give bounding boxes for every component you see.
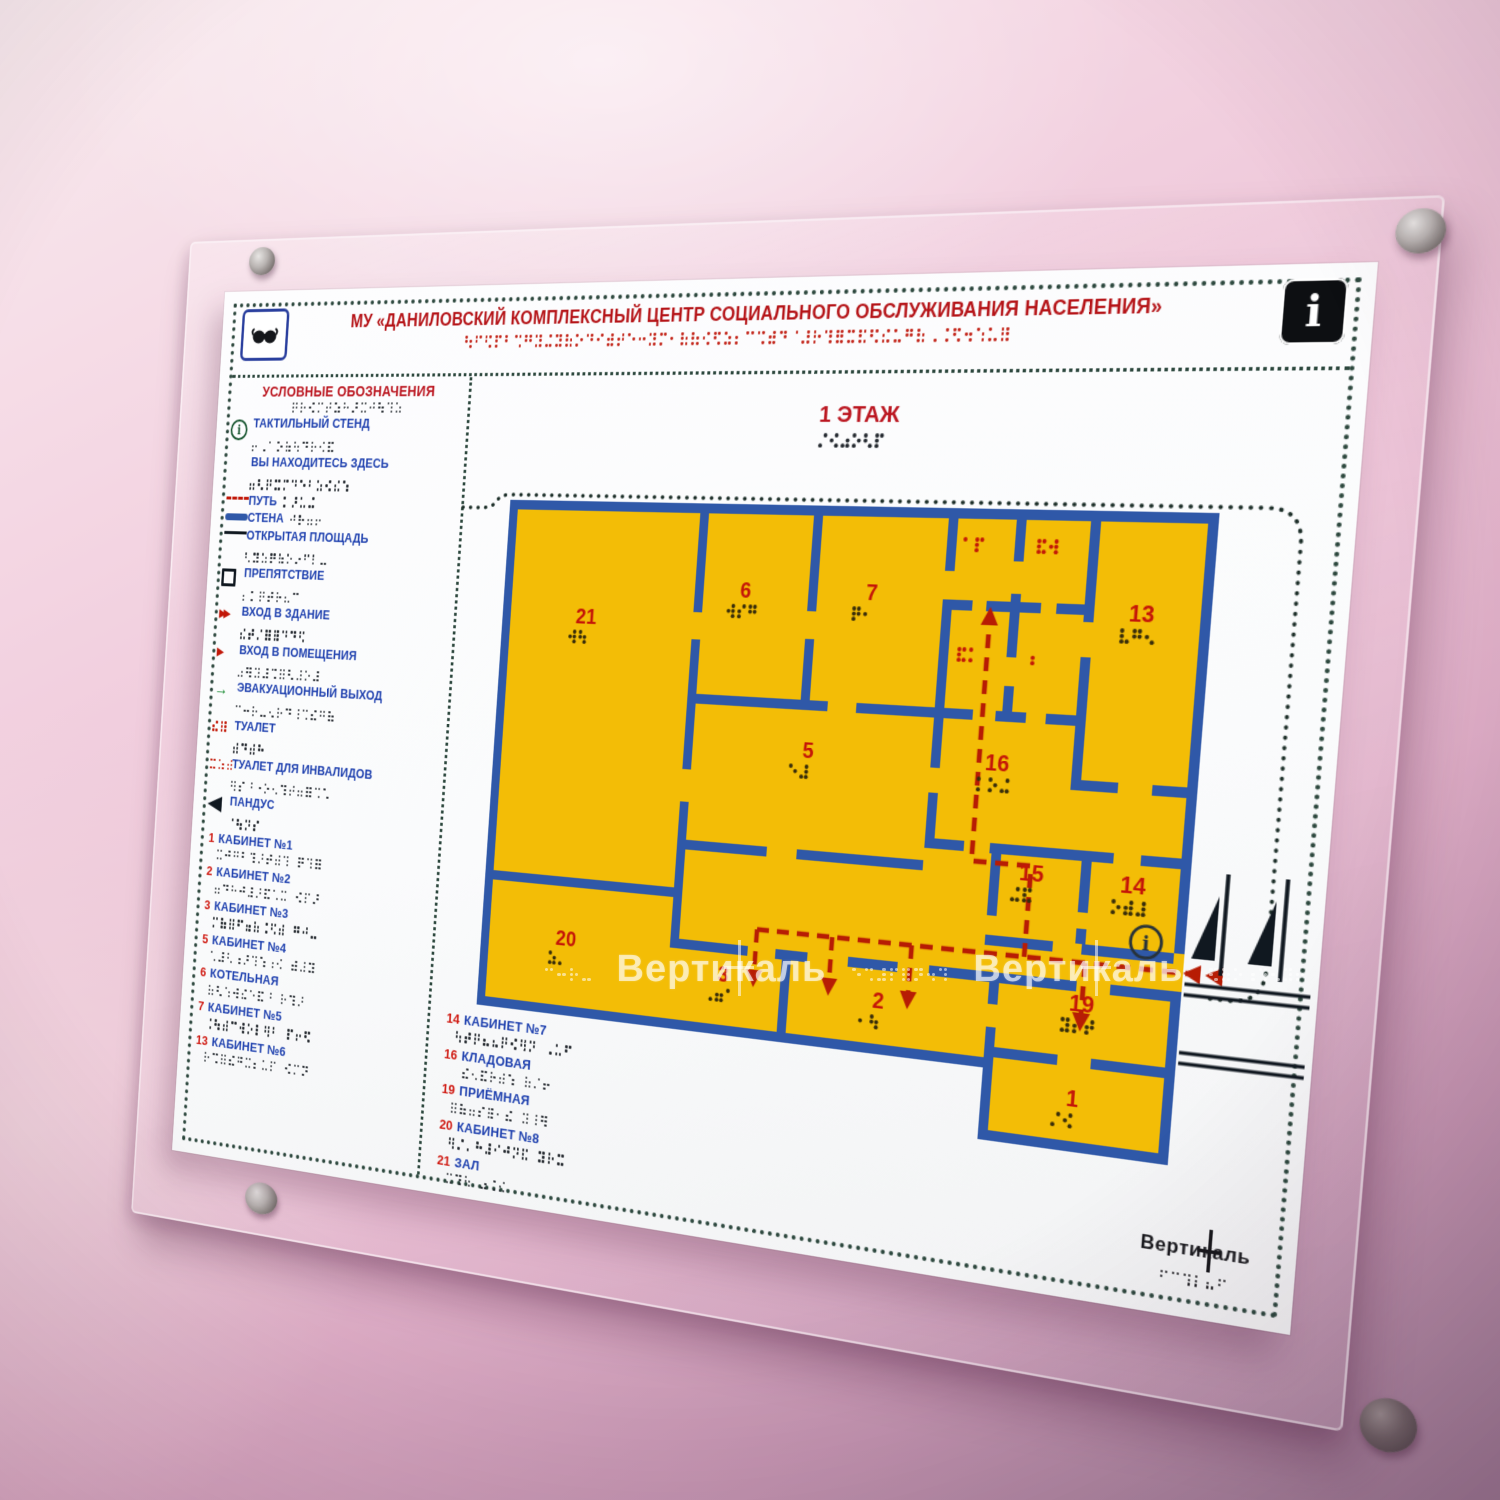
legend-item-label: ТАКТИЛЬНЫЙ СТЕНД bbox=[253, 417, 370, 431]
glasses-icon bbox=[249, 323, 281, 347]
plan-room-number: 16 bbox=[984, 749, 1010, 777]
legend-item: ПРЕПЯТСТВИЕ bbox=[220, 566, 455, 610]
plan-room-number: 1 bbox=[1065, 1085, 1080, 1113]
legend-item-label: ВХОД В ПОМЕЩЕНИЯ bbox=[239, 643, 357, 663]
room-number: 3 bbox=[204, 897, 211, 912]
legend-item-label: ВХОД В ЗДАНИЕ bbox=[241, 605, 330, 623]
legend-item: ОТКРЫТАЯ ПЛОЩАДЬ bbox=[223, 528, 458, 570]
entrance-tracks bbox=[1178, 984, 1310, 1078]
floor-label: 1 ЭТАЖ bbox=[818, 400, 901, 427]
ramp-icon bbox=[1190, 872, 1288, 982]
room-list-left: 1КАБИНЕТ №12КАБИНЕТ №23КАБИНЕТ №35КАБИНЕ… bbox=[192, 829, 437, 1093]
legend-item: СТЕНА bbox=[225, 510, 459, 529]
room-name: ЗАЛ bbox=[454, 1154, 480, 1173]
room-number: 5 bbox=[202, 931, 209, 946]
plan-room-number: 7 bbox=[865, 580, 879, 606]
legend-item-label: ВЫ НАХОДИТЕСЬ ЗДЕСЬ bbox=[251, 455, 390, 470]
info-icon: i bbox=[1304, 289, 1324, 333]
plan-room-number: 21 bbox=[575, 604, 597, 629]
legend-items: iТАКТИЛЬНЫЙ СТЕНДВЫ НАХОДИТЕСЬ ЗДЕСЬПУТЬ… bbox=[206, 417, 465, 848]
thin-line-icon bbox=[224, 531, 246, 535]
legend-item-label: ЭВАКУАЦИОННЫЙ ВЫХОД bbox=[237, 681, 383, 704]
square-outline-icon bbox=[221, 569, 236, 587]
room-number: 7 bbox=[198, 998, 205, 1013]
photo-scene: i МУ «ДАНИЛОВСКИЙ КОМПЛЕКСНЫЙ ЦЕНТР СОЦИ… bbox=[0, 0, 1500, 1500]
plan-room-number: 5 bbox=[802, 738, 815, 764]
legend-item-label: ПАНДУС bbox=[229, 795, 274, 812]
plan-room-number: 19 bbox=[1068, 990, 1095, 1019]
wall-bar-icon bbox=[225, 513, 248, 520]
sign-board: i МУ «ДАНИЛОВСКИЙ КОМПЛЕКСНЫЙ ЦЕНТР СОЦИ… bbox=[172, 262, 1378, 1335]
room-number: 19 bbox=[441, 1081, 455, 1098]
legend-item: ПУТЬ bbox=[226, 493, 460, 511]
legend-item: ВЫ НАХОДИТЕСЬ ЗДЕСЬ bbox=[227, 455, 463, 493]
standoff-bottom-right bbox=[1357, 1394, 1419, 1458]
plan-room-number: 14 bbox=[1119, 871, 1147, 900]
legend-item-label: ОТКРЫТАЯ ПЛОЩАДЬ bbox=[246, 528, 369, 545]
legend-item-label: ПУТЬ bbox=[248, 493, 277, 507]
room-number: 2 bbox=[206, 864, 213, 879]
plan-room-number: 15 bbox=[1018, 859, 1045, 887]
low-vision-badge bbox=[240, 308, 290, 361]
info-circle-icon: i bbox=[230, 420, 248, 441]
info-badge: i bbox=[1278, 278, 1349, 345]
room-number: 21 bbox=[437, 1151, 451, 1168]
room-number: 20 bbox=[439, 1116, 453, 1133]
path-dashed-icon bbox=[226, 496, 248, 499]
legend-item-label: ТУАЛЕТ bbox=[234, 719, 276, 735]
legend-item-label: СТЕНА bbox=[247, 511, 284, 525]
room-number: 16 bbox=[444, 1045, 458, 1062]
header-separator bbox=[232, 366, 1349, 378]
legend-item-label: ПРЕПЯТСТВИЕ bbox=[244, 567, 325, 583]
plan-room-number: 20 bbox=[555, 926, 577, 952]
room-number: 6 bbox=[200, 965, 207, 980]
room-number: 1 bbox=[208, 830, 215, 845]
room-name: КАБИНЕТ №1 bbox=[218, 831, 293, 853]
room-number: 14 bbox=[446, 1010, 460, 1027]
arrow-green-icon: → bbox=[214, 682, 228, 696]
legend-heading-braille bbox=[232, 402, 467, 413]
room-number: 13 bbox=[196, 1032, 209, 1048]
plan-room-number: 6 bbox=[739, 578, 752, 603]
ramp-triangle-icon bbox=[207, 796, 222, 813]
double-arrow-red-icon: ▶▶ bbox=[219, 607, 228, 620]
plan-room-number: 2 bbox=[871, 987, 885, 1014]
room-name: КАБИНЕТ №2 bbox=[216, 864, 291, 886]
tactile-sign-panel: i МУ «ДАНИЛОВСКИЙ КОМПЛЕКСНЫЙ ЦЕНТР СОЦИ… bbox=[172, 262, 1378, 1335]
plan-room-number: 13 bbox=[1128, 600, 1156, 628]
legend-item: iТАКТИЛЬНЫЙ СТЕНД bbox=[229, 417, 465, 453]
legend: УСЛОВНЫЕ ОБОЗНАЧЕНИЯ iТАКТИЛЬНЫЙ СТЕНДВЫ… bbox=[191, 384, 467, 1099]
arrow-red-icon: ▶ bbox=[217, 645, 224, 658]
legend-heading: УСЛОВНЫЕ ОБОЗНАЧЕНИЯ bbox=[233, 384, 468, 401]
plan-room-number: 3 bbox=[717, 961, 730, 987]
